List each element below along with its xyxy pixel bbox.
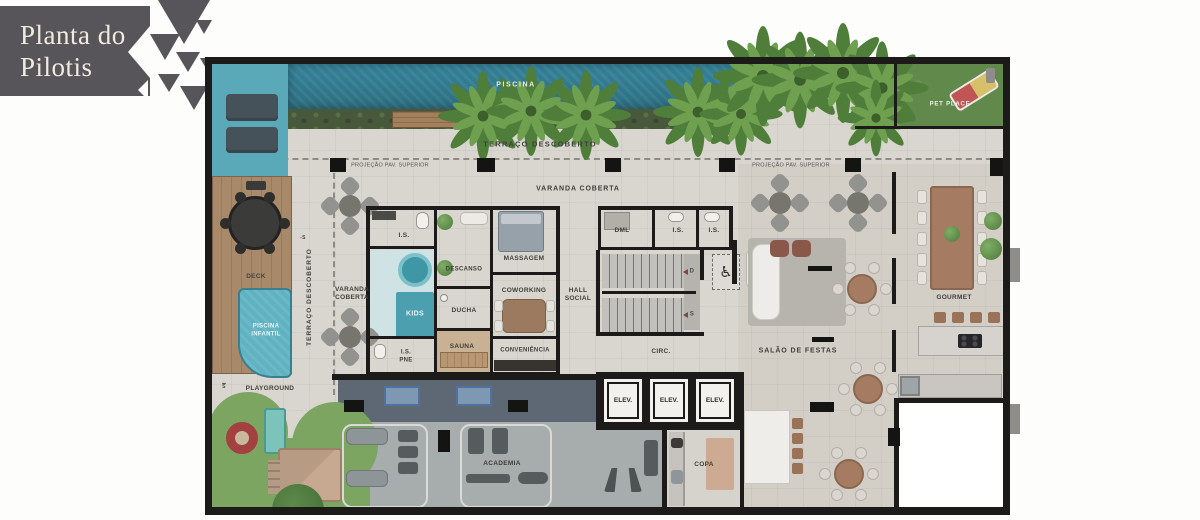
chair [494,320,503,332]
veranda-left-line2: COBERTA [335,294,369,302]
pool-label: PISCINA [496,82,536,91]
coworking-label: COWORKING [502,287,547,295]
cooktop [958,334,982,348]
wall [700,250,704,280]
stairs-lower-run [602,298,684,332]
wall [490,206,493,376]
wall [596,250,600,336]
pet-item [986,68,995,83]
column [845,158,861,172]
wall [892,258,896,304]
wall [662,428,667,508]
elevator: ELEV. [602,377,644,424]
wall [366,336,437,339]
weight-plates [518,472,548,484]
wall [434,206,437,376]
chair [546,300,555,312]
treadmill [346,428,388,445]
chair [977,190,987,204]
sun-lounger [226,94,278,121]
playground-sandpit [226,422,258,454]
toilet [668,212,684,222]
projection-label: PROJEÇÃO PAV. SUPERIOR [752,163,830,170]
stairs-up-arrow [683,312,688,318]
column [812,337,834,342]
kids-label: KIDS [406,311,424,320]
hall-label: HALL SOCIAL [565,287,591,303]
wall [652,206,655,250]
elevator-label: ELEV. [706,397,724,404]
playhouse-steps [268,460,280,494]
veranda-left-line1: VARANDA [335,286,369,294]
exercise-bench [644,440,658,476]
badge-triangle [158,74,180,92]
counter-stool [952,312,964,323]
kids-ballpit [398,253,432,287]
wall [696,206,699,250]
wall [596,332,704,336]
page-title-line2: Pilotis [20,52,93,83]
stairs-upper-run [602,254,684,288]
palm-tree [559,88,613,142]
copa-sink [671,470,683,484]
massage-label: MASSAGEM [504,255,545,263]
outer-wall-top [205,57,1010,64]
wall [892,172,896,234]
wall [434,328,493,331]
plant [980,238,1002,260]
counter-stool [988,312,1000,323]
page-title: Planta do [20,20,126,51]
stairs-up-label: S [690,311,694,319]
deck-chair [279,218,290,229]
hall-line1: HALL [565,287,591,295]
rest-room-label: DESCANSO [446,266,482,274]
restroom-label: I.S. [673,227,684,235]
wall [732,240,737,284]
badge-notch [128,26,150,78]
table-plant [944,226,960,242]
hall-line2: SOCIAL [565,295,591,303]
chair [917,253,927,267]
toilet [416,212,429,229]
column [810,402,834,412]
store-shelf [494,360,558,371]
terrace-vertical-label: TERRAÇO DESCOBERTO [306,248,314,346]
chair [917,211,927,225]
toilet [374,344,386,359]
treadmill [346,470,388,487]
column [888,428,900,446]
bar-stool [792,433,803,444]
sun-lounger [226,127,278,153]
chair [917,232,927,246]
wall [598,247,732,250]
bar-stool [792,463,803,474]
armchair [770,240,789,257]
bar-counter [744,410,790,484]
veranda-label: VARANDA COBERTA [536,186,620,195]
deck-table [228,196,282,250]
wall [598,206,732,210]
restroom-label: I.S. [399,232,410,240]
column [438,430,450,452]
palm-tree [853,95,899,141]
dining-table-round [821,446,877,502]
gym-label: ACADEMIA [483,460,520,468]
wall [556,206,560,376]
level-marker: S [222,384,226,390]
pne-line2: PNE [399,357,412,365]
column [344,400,364,412]
plant [984,212,1002,230]
stairs-down-label: D [690,268,695,276]
kids-pool-label-line2: INFANTIL [251,331,280,339]
weight-station [398,462,418,474]
level-marker: -S [300,235,306,241]
column [605,158,621,172]
accessible-restroom-label: I.S. PNE [399,350,412,365]
wall [894,64,897,128]
massage-pillow [501,214,541,224]
copa-label: COPA [694,461,714,469]
circulation-label: CIRC. [651,348,670,356]
elevator: ELEV. [648,377,690,424]
wall [332,374,600,380]
elevator-label: ELEV. [614,397,632,404]
empty-room [899,403,1003,507]
restroom-label: I.S. [709,227,720,235]
column [719,158,735,172]
wall [490,272,559,275]
chair [917,190,927,204]
playground-label: PLAYGROUND [246,385,295,393]
column [330,158,346,172]
wall [894,398,899,510]
gourmet-label: GOURMET [936,294,971,302]
barbell-bench [466,474,510,483]
column [477,158,495,172]
kids-pool-label-line1: PISCINA [251,324,280,332]
column [508,400,528,412]
plant [437,214,453,230]
armchair [792,240,811,257]
wall [894,398,1006,403]
wall [366,246,437,249]
stairs-down-arrow [683,269,688,275]
door-stub [1010,404,1020,434]
deck-chair [220,218,231,229]
wheelchair-icon: ♿ [719,263,732,281]
outer-wall-right [1003,57,1010,515]
badge-triangle [196,20,212,34]
weight-station [398,430,418,442]
chair [917,271,927,285]
chair [494,300,503,312]
weight-station [398,446,418,458]
party-room-label: SALÃO DE FESTAS [759,348,838,357]
shower-head [440,294,448,302]
gym-mat [384,386,420,406]
wall [740,430,744,508]
badge-notch [138,80,148,100]
deck-chair [264,243,275,254]
sink-counter [372,211,396,220]
pet-place-label: PET PLACE [930,101,971,109]
shower-label: DUCHA [452,307,477,315]
stairs-divider [602,291,696,294]
pool-lounge-deck [212,64,288,178]
bar-stool [792,418,803,429]
elevator: ELEV. [694,377,736,424]
pne-line1: I.S. [399,350,412,358]
wall [892,330,896,372]
dining-table-round [840,361,896,417]
outer-wall-bottom [205,507,1010,515]
coworking-table [502,299,546,333]
wall [598,206,601,250]
convenience-label: CONVENIÊNCIA [500,347,550,355]
copa-appliance [671,438,683,448]
wall [855,126,1003,129]
deck-stools [246,181,266,190]
exercise-machine [468,428,484,454]
sauna-bench [440,352,488,368]
toilet [704,212,720,222]
deck-label: DECK [246,273,266,281]
kids-pool-label: PISCINA INFANTIL [251,324,280,339]
terrace-label: TERRAÇO DESCOBERTO [483,139,597,148]
counter-stool [970,312,982,323]
door-stub [1010,248,1020,282]
lounge-chair [460,212,488,225]
deck-table-group [222,190,288,256]
badge-triangle [176,52,200,72]
chair [546,320,555,332]
bar-stool [792,448,803,459]
projection-label: PROJEÇÃO PAV. SUPERIOR [351,163,429,170]
deck-chair [235,192,246,203]
wall [490,336,559,339]
dining-table-round [834,261,890,317]
badge-triangle [180,86,208,110]
wall [434,286,493,289]
exercise-machine [492,428,508,454]
sink [900,376,920,396]
counter-stool [934,312,946,323]
elevator-label: ELEV. [660,397,678,404]
wall [366,206,560,210]
deck-chair [235,243,246,254]
sauna-label: SAUNA [450,343,475,351]
column [808,266,832,271]
deck-chair [264,192,275,203]
outer-wall-left [205,57,212,515]
dml-label: DML [615,227,630,235]
gym-mat [456,386,492,406]
veranda-left-label: VARANDA COBERTA [335,286,369,302]
chair [977,271,987,285]
floorplan-page: Planta do Pilotis PISCINA PET PLACE TERR… [0,0,1200,520]
